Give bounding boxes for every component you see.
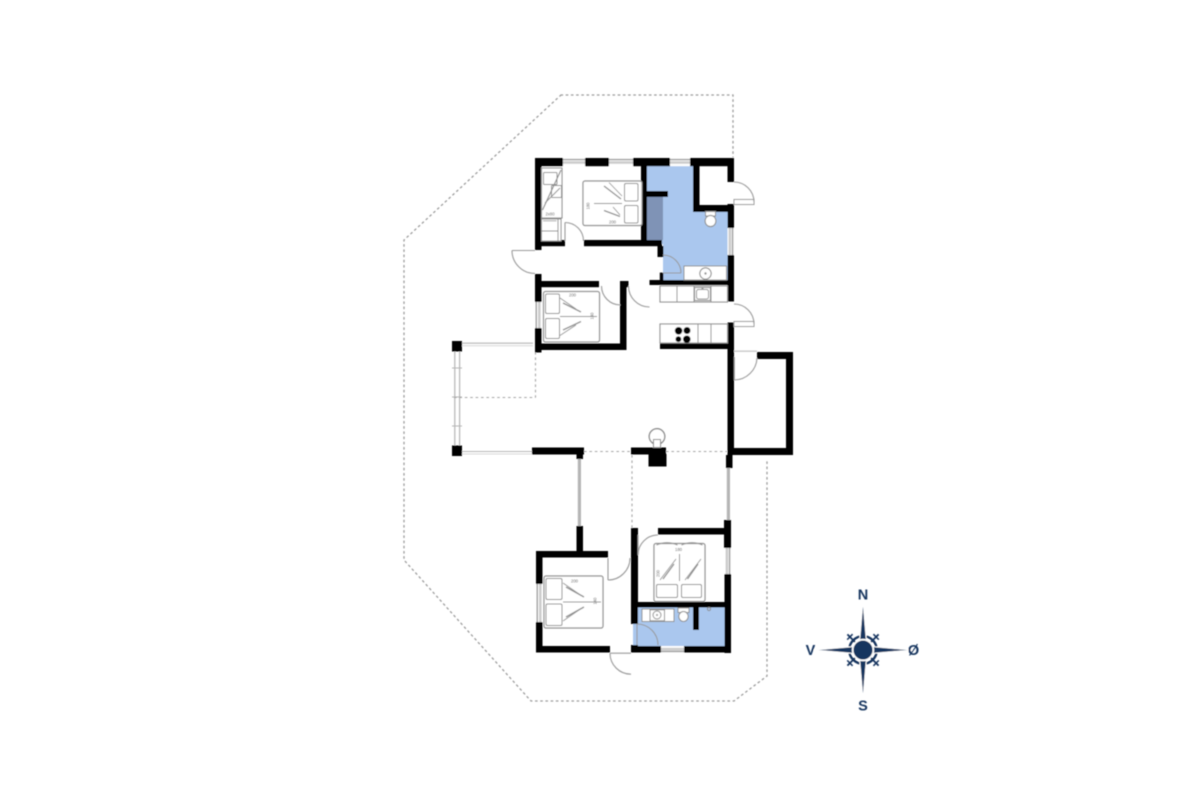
svg-text:200: 200 bbox=[609, 220, 617, 225]
svg-text:Ø: Ø bbox=[908, 643, 919, 659]
svg-text:140: 140 bbox=[593, 597, 598, 605]
svg-text:S: S bbox=[858, 699, 868, 715]
svg-text:N: N bbox=[858, 588, 868, 604]
svg-text:200: 200 bbox=[569, 293, 577, 298]
svg-text:140: 140 bbox=[590, 312, 595, 320]
svg-text:200: 200 bbox=[656, 569, 661, 577]
svg-text:180: 180 bbox=[586, 202, 591, 210]
svg-text:2x80: 2x80 bbox=[545, 212, 555, 217]
svg-text:200: 200 bbox=[571, 579, 579, 584]
svg-text:V: V bbox=[806, 643, 816, 659]
svg-text:180: 180 bbox=[675, 547, 683, 552]
